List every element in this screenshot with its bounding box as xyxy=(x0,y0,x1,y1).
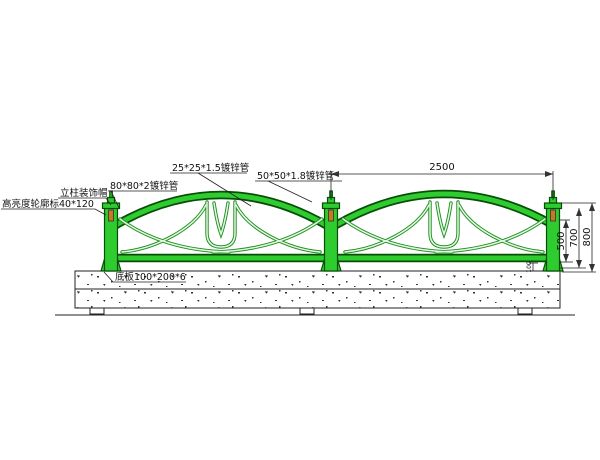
reflector-marker xyxy=(551,210,556,221)
reflector-marker xyxy=(109,210,114,221)
post-left xyxy=(101,191,121,271)
fence-bay-1 xyxy=(116,195,326,252)
dimension-text-800: 800 xyxy=(582,227,593,246)
arch-top-rail-fill xyxy=(336,194,553,225)
foot-left xyxy=(90,308,104,314)
annotation-text: 立柱装饰帽 xyxy=(60,187,108,199)
arch-top-rail-fill xyxy=(116,195,326,225)
annotation-text: 底板100*200*6 xyxy=(115,271,186,283)
dimension-text: 2500 xyxy=(429,162,454,173)
post-middle xyxy=(321,191,341,271)
fence-bay-2 xyxy=(336,194,553,252)
annotation-text: 25*25*1.5镀锌管 xyxy=(172,162,249,174)
annotation-reflector: 高亮度轮廓标40*120 xyxy=(1,198,106,215)
dimension-bottom-gap: 100 xyxy=(526,261,538,273)
annotation-text: 50*50*1.8镀锌管 xyxy=(257,170,334,182)
drawing-canvas: 2500 500 700 800 100 立柱装饰帽 高亮度轮廓标40*120 … xyxy=(0,0,600,460)
annotation-text: 高亮度轮廓标40*120 xyxy=(2,198,94,210)
dimension-text-700: 700 xyxy=(569,228,580,247)
reflector-marker xyxy=(329,210,334,221)
post-cap xyxy=(323,203,340,209)
post-cap xyxy=(545,203,562,209)
dimension-heights: 500 700 800 xyxy=(556,203,596,272)
foot-right xyxy=(518,308,532,314)
dimension-text-500: 500 xyxy=(556,231,567,250)
dimension-text-100: 100 xyxy=(526,261,533,273)
foot-middle xyxy=(300,308,314,314)
fence-elevation-drawing: 2500 500 700 800 100 立柱装饰帽 高亮度轮廓标40*120 … xyxy=(0,0,600,460)
annotation-text: 80*80*2镀锌管 xyxy=(110,180,178,192)
annotation-base-plate: 底板100*200*6 xyxy=(104,271,186,283)
post-right xyxy=(543,191,563,271)
